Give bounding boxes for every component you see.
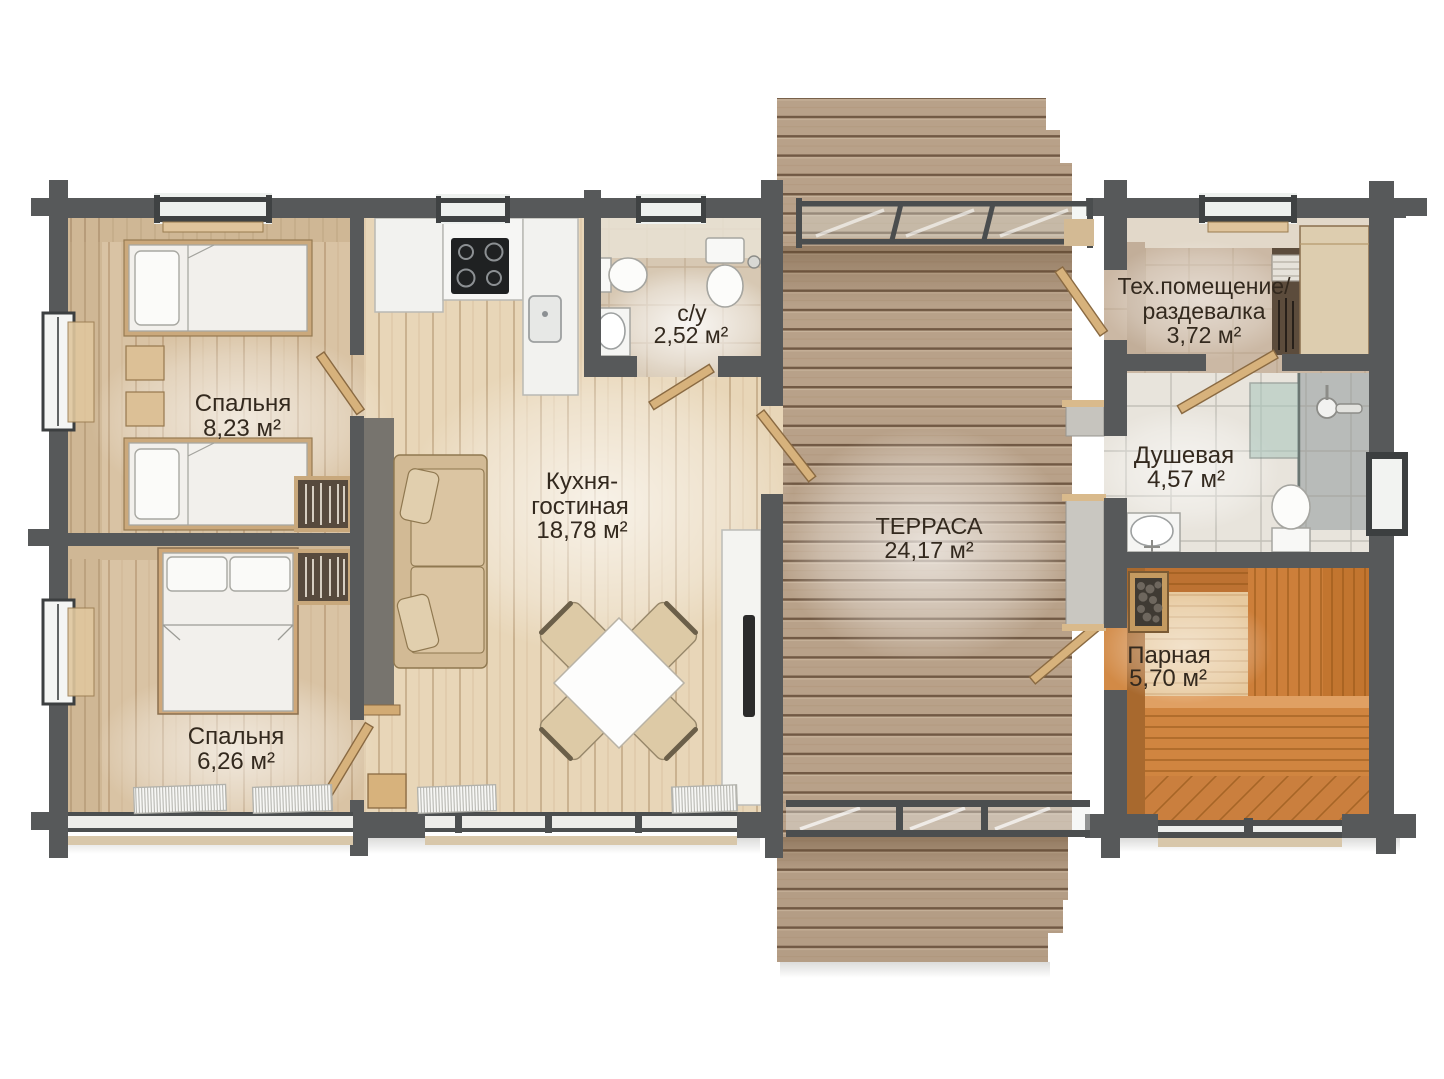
svg-text:24,17 м²: 24,17 м² — [884, 537, 973, 563]
svg-text:8,23 м²: 8,23 м² — [203, 415, 281, 442]
svg-text:Кухня-: Кухня- — [546, 468, 618, 495]
svg-text:ТЕРРАСА: ТЕРРАСА — [875, 513, 982, 539]
svg-text:3,72 м²: 3,72 м² — [1167, 322, 1242, 348]
svg-text:4,57 м²: 4,57 м² — [1147, 466, 1225, 493]
svg-text:Тех.помещение/: Тех.помещение/ — [1118, 273, 1292, 299]
svg-text:Спальня: Спальня — [195, 390, 291, 417]
svg-text:18,78 м²: 18,78 м² — [536, 517, 627, 544]
svg-text:6,26 м²: 6,26 м² — [197, 748, 275, 775]
svg-text:Спальня: Спальня — [188, 723, 284, 750]
svg-text:Душевая: Душевая — [1134, 442, 1234, 469]
svg-text:5,70 м²: 5,70 м² — [1129, 665, 1207, 692]
svg-text:2,52 м²: 2,52 м² — [654, 322, 729, 348]
svg-text:раздевалка: раздевалка — [1142, 298, 1265, 324]
svg-text:гостиная: гостиная — [531, 493, 629, 520]
